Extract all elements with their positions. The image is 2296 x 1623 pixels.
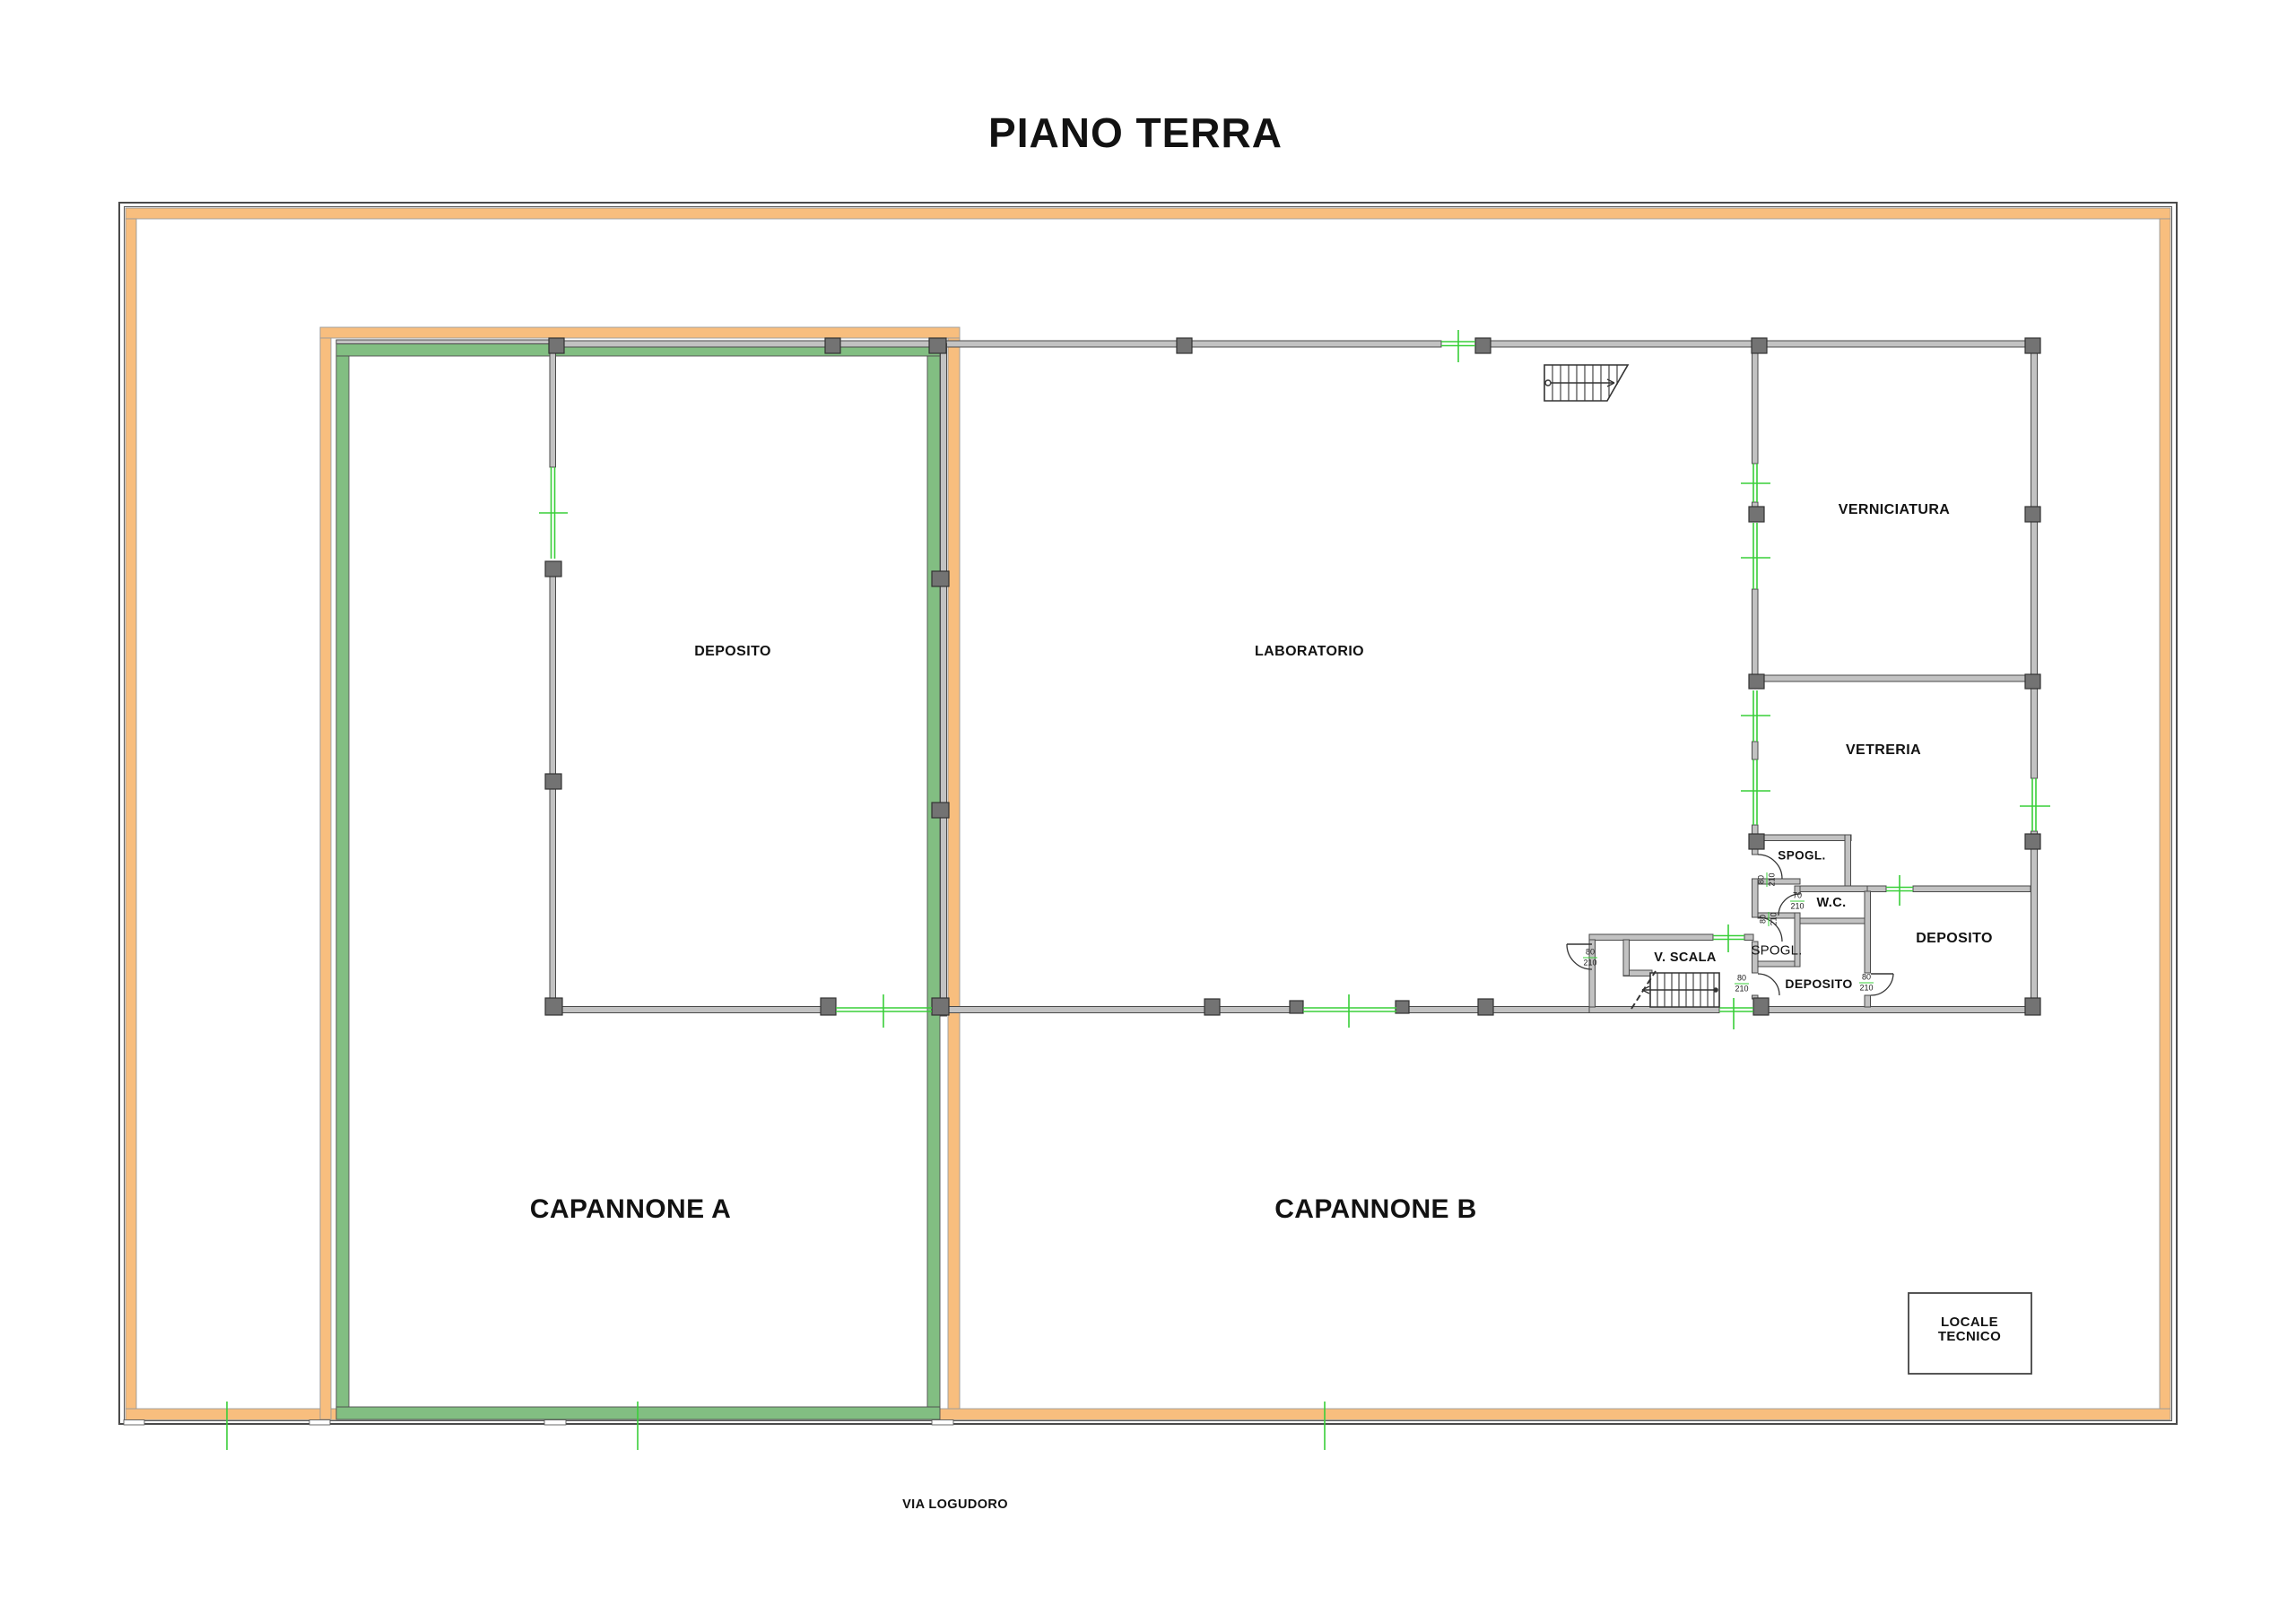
wall: [1865, 891, 1871, 973]
pillar: [1396, 1001, 1409, 1013]
wall: [2031, 689, 2038, 778]
wall: [1798, 918, 1867, 924]
pillar: [1749, 834, 1764, 849]
wall: [562, 1007, 821, 1013]
wall: [550, 789, 556, 999]
wall: [945, 341, 1177, 347]
pillar: [1478, 999, 1493, 1015]
wall: [1744, 934, 1753, 941]
wall: [1493, 1007, 1589, 1013]
pillar: [932, 803, 949, 818]
wall: [564, 341, 929, 347]
pillar: [1290, 1001, 1303, 1013]
pillar: [545, 774, 561, 789]
pillar: [932, 571, 949, 586]
wall: [1758, 961, 1800, 967]
wall: [550, 577, 556, 774]
wall: [2031, 849, 2038, 998]
wall: [2031, 522, 2038, 674]
pillar: [545, 998, 562, 1015]
pillar: [549, 338, 564, 353]
wall: [1589, 934, 1713, 941]
pillar: [1177, 338, 1192, 353]
pillar: [1205, 999, 1220, 1015]
door-arc-wc: [1779, 894, 1800, 916]
wall: [1758, 835, 1851, 841]
lot-b-band: [320, 338, 331, 1419]
lot-b-band: [126, 208, 2170, 219]
wall: [1752, 879, 1759, 917]
pillar: [932, 998, 949, 1015]
pillar: [1752, 338, 1767, 353]
wall: [1767, 341, 2025, 347]
wall: [1623, 940, 1630, 976]
wall: [1798, 886, 1867, 892]
boundary-tab: [544, 1420, 566, 1426]
wall: [1752, 825, 1759, 834]
pillar: [1475, 338, 1491, 353]
floorplan-page: PIANO TERRA DEPOSITO LABORATORIO VERNICI…: [0, 0, 2296, 1623]
plot-outer-boundary: [119, 203, 2177, 1424]
wall: [1752, 849, 1759, 855]
lot-a-band: [927, 356, 940, 1407]
lot-b-band: [126, 219, 136, 1409]
wall: [941, 343, 947, 1016]
wall: [1409, 1007, 1478, 1013]
wall: [1220, 1007, 1290, 1013]
wall: [1845, 835, 1851, 886]
pillar: [825, 338, 840, 353]
stair-end-circle: [1713, 987, 1718, 993]
lot-b-band: [948, 338, 960, 1409]
wall: [1865, 995, 1871, 1007]
floorplan-drawing: [0, 0, 2296, 1623]
wall: [1752, 942, 1759, 973]
wall: [1752, 742, 1759, 759]
pillar: [1749, 674, 1764, 689]
wall: [1764, 675, 2025, 681]
door-arc-v-scala: [1567, 944, 1592, 969]
wall: [550, 353, 556, 467]
wall: [1758, 879, 1800, 884]
wall: [2031, 353, 2038, 507]
pillar: [2025, 507, 2040, 522]
wall: [1589, 940, 1596, 1007]
boundary-tab: [309, 1420, 330, 1426]
door-arc-spogl-upper: [1758, 855, 1782, 879]
pillar: [1753, 998, 1769, 1015]
wall: [1913, 886, 2031, 892]
wall: [1795, 913, 1800, 967]
pillar: [929, 338, 946, 353]
lot-b-band: [2160, 219, 2170, 1409]
wall: [1491, 341, 1752, 347]
wall: [948, 1007, 1205, 1013]
door-arc-deposito-small-west: [1758, 974, 1779, 995]
pillar: [1749, 507, 1764, 522]
lot-a-band: [336, 356, 349, 1407]
pillar: [545, 561, 561, 577]
door-arc-deposito-small-east: [1871, 974, 1893, 995]
boundary-tab: [932, 1420, 953, 1426]
pillar: [2025, 338, 2040, 353]
plot-inner-boundary: [125, 207, 2172, 1421]
pillar: [2025, 834, 2040, 849]
wall: [1192, 341, 1441, 347]
door-arc-spogl-lower: [1758, 917, 1782, 942]
wall: [1795, 886, 1800, 894]
boundary-tab: [124, 1420, 144, 1426]
pillar: [2025, 998, 2040, 1015]
wall: [336, 340, 550, 344]
pillar: [2025, 674, 2040, 689]
pillar: [821, 998, 836, 1015]
lot-b-band: [320, 327, 960, 338]
wall: [1752, 353, 1759, 464]
locale-tecnico-box: [1909, 1293, 2031, 1374]
wall: [1769, 1007, 2025, 1013]
wall: [1752, 589, 1759, 674]
